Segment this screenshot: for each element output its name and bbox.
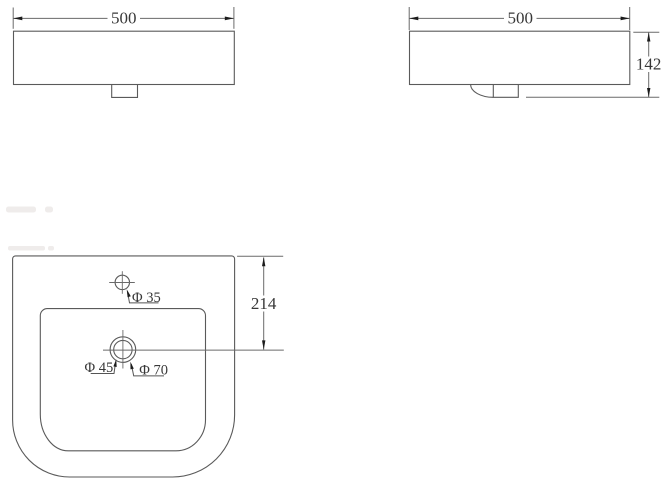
- svg-text:Φ 70: Φ 70: [139, 362, 168, 378]
- svg-text:500: 500: [508, 9, 534, 28]
- svg-text:Φ 35: Φ 35: [132, 290, 161, 306]
- svg-text:214: 214: [251, 294, 277, 313]
- svg-text:142: 142: [636, 54, 662, 73]
- svg-text:Φ 45: Φ 45: [85, 360, 114, 376]
- svg-text:500: 500: [111, 9, 137, 28]
